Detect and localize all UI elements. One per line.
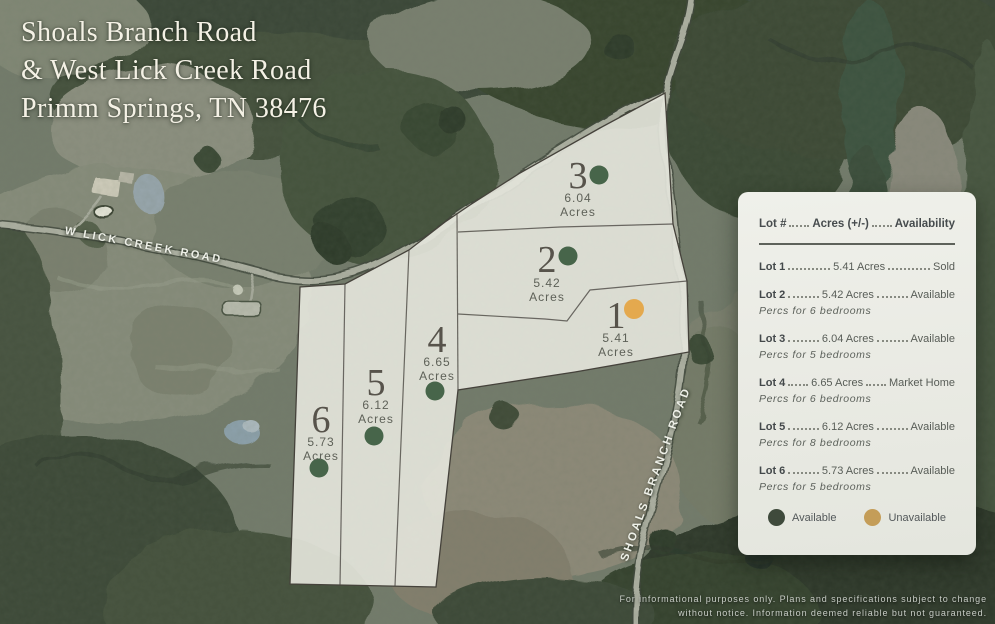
lot-4-acres-value: 6.65: [423, 355, 450, 369]
lot-2-number: 2: [538, 239, 557, 281]
legend-row-lot-2: Lot 2 5.42 Acres Available Percs for 6 b…: [759, 289, 955, 317]
lot-4-acres-unit: Acres: [419, 369, 455, 383]
lot-5-note: Percs for 8 bedrooms: [759, 437, 955, 449]
lot-4-status-dot: [426, 382, 445, 401]
dotted-leader: [877, 296, 908, 298]
legend-divider: [759, 243, 955, 245]
disclaimer-line-1: For informational purposes only. Plans a…: [619, 592, 987, 606]
available-label: Available: [792, 512, 836, 524]
lot-5-acres: 6.12 Acres: [822, 421, 874, 433]
title-line-1: Shoals Branch Road: [21, 14, 327, 52]
legend-row-lot-5: Lot 5 6.12 Acres Available Percs for 8 b…: [759, 421, 955, 449]
lot-3-acres-value: 6.04: [564, 191, 591, 205]
unavailable-dot-icon: [864, 509, 881, 526]
lot-6-acres: 5.73 Acres: [822, 465, 874, 477]
dotted-leader: [888, 268, 930, 270]
lot-3-availability: Available: [911, 333, 955, 345]
unavailable-label: Unavailable: [888, 512, 945, 524]
dotted-leader: [788, 340, 819, 342]
lot-5-label: Lot 5: [759, 421, 785, 433]
lot-2-acres: 5.42 Acres: [822, 289, 874, 301]
dotted-leader: [788, 472, 819, 474]
lot-2-status-dot: [559, 247, 578, 266]
lot-6-note: Percs for 5 bedrooms: [759, 481, 955, 493]
status-key-unavailable: Unavailable: [864, 509, 945, 526]
lot-3-status-dot: [590, 166, 609, 185]
legend-row-lot-6: Lot 6 5.73 Acres Available Percs for 5 b…: [759, 465, 955, 493]
lot-legend-panel: Lot # Acres (+/-) Availability Lot 1 5.4…: [738, 192, 976, 555]
legend-header: Lot # Acres (+/-) Availability: [759, 218, 955, 230]
lot-2-availability: Available: [911, 289, 955, 301]
title-line-2: & West Lick Creek Road: [21, 52, 327, 90]
legend-row-lot-3: Lot 3 6.04 Acres Available Percs for 5 b…: [759, 333, 955, 361]
lot-5-status-dot: [365, 427, 384, 446]
legend-header-availability: Availability: [895, 218, 955, 230]
lot-6-acres-value: 5.73: [307, 435, 334, 449]
lot-1-status-dot: [624, 299, 644, 319]
legend-row-lot-4: Lot 4 6.65 Acres Market Home Percs for 6…: [759, 377, 955, 405]
lot-3-label: Lot 3: [759, 333, 785, 345]
dotted-leader: [877, 428, 908, 430]
legend-row-lot-1: Lot 1 5.41 Acres Sold: [759, 261, 955, 273]
lot-1-availability: Sold: [933, 261, 955, 273]
lot-1-label: Lot 1: [759, 261, 785, 273]
dotted-leader: [877, 472, 908, 474]
lot-3-acres: 6.04 Acres: [822, 333, 874, 345]
lot-5-availability: Available: [911, 421, 955, 433]
lot-3-acres-unit: Acres: [560, 205, 596, 219]
lot-4-note: Percs for 6 bedrooms: [759, 393, 955, 405]
dotted-leader: [872, 225, 892, 227]
legend-header-acres: Acres (+/-): [812, 218, 869, 230]
lot-1-acres-unit: Acres: [598, 345, 634, 359]
lot-2-label: Lot 2: [759, 289, 785, 301]
status-key-available: Available: [768, 509, 836, 526]
page-title: Shoals Branch Road & West Lick Creek Roa…: [21, 14, 327, 128]
lot-map-flyer: 1 5.41 Acres 2 5.42 Acres 3 6.04 Acres 4…: [0, 0, 995, 624]
disclaimer: For informational purposes only. Plans a…: [619, 592, 987, 620]
title-line-3: Primm Springs, TN 38476: [21, 90, 327, 128]
available-dot-icon: [768, 509, 785, 526]
dotted-leader: [866, 384, 886, 386]
lot-3-note: Percs for 5 bedrooms: [759, 349, 955, 361]
dotted-leader: [788, 384, 808, 386]
lot-2-acres-unit: Acres: [529, 290, 565, 304]
lot-4-acres: 6.65 Acres: [811, 377, 863, 389]
lot-4-availability: Market Home: [889, 377, 955, 389]
lot-1-acres: 5.41 Acres: [833, 261, 885, 273]
lot-2-note: Percs for 6 bedrooms: [759, 305, 955, 317]
status-key: Available Unavailable: [759, 509, 955, 526]
dotted-leader: [877, 340, 908, 342]
lot-4-label: Lot 4: [759, 377, 785, 389]
lot-6-label: Lot 6: [759, 465, 785, 477]
lot-2-acres-value: 5.42: [533, 276, 560, 290]
dotted-leader: [789, 225, 809, 227]
lot-6-availability: Available: [911, 465, 955, 477]
disclaimer-line-2: without notice. Information deemed relia…: [619, 606, 987, 620]
dotted-leader: [788, 296, 819, 298]
lot-1-acres-value: 5.41: [602, 331, 629, 345]
dotted-leader: [788, 428, 819, 430]
lot-6-acres-unit: Acres: [303, 449, 339, 463]
dotted-leader: [788, 268, 830, 270]
lot-5-acres-value: 6.12: [362, 398, 389, 412]
lot-5-acres-unit: Acres: [358, 412, 394, 426]
legend-header-lot: Lot #: [759, 218, 786, 230]
